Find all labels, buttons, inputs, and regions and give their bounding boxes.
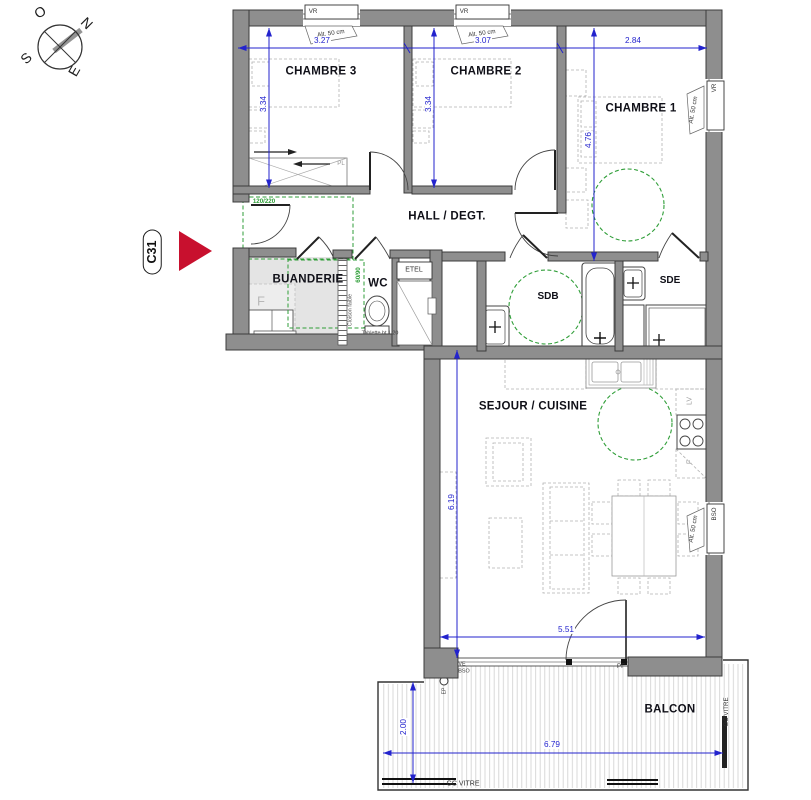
cloison-faible-label: Cloison faible xyxy=(348,294,353,326)
sde-door-leaf xyxy=(672,233,699,258)
toilet xyxy=(365,296,389,326)
room-label-chambre1: CHAMBRE 1 xyxy=(605,103,676,115)
window-label-vr-chambre3: VR xyxy=(309,9,318,15)
turning-circle-cuisine xyxy=(598,386,672,460)
wall-sejour-bottom-right xyxy=(628,657,722,676)
unit-label: C31 xyxy=(143,230,162,275)
window-label-vr-chambre1: VR xyxy=(712,84,718,93)
turning-circle-chambre1 xyxy=(592,169,664,241)
doors xyxy=(251,150,699,660)
floor-plan: O N E S C31 CHAMBRE 3 CHAMBRE 2 CHAMBRE … xyxy=(0,0,811,800)
bay-label-pf: PF xyxy=(617,664,625,670)
coffee-table xyxy=(489,518,522,568)
closet-pl xyxy=(249,149,347,191)
bay-label-ve: VE xyxy=(458,662,465,667)
closet-label-pl: PL xyxy=(337,161,345,167)
washer-label: F xyxy=(257,295,265,308)
tablette-label: Tablette ht 1.20 xyxy=(362,331,399,336)
entry-door-swing xyxy=(251,205,290,244)
wc-door-size-label: 60/90 xyxy=(356,267,362,282)
dim-label-chambre2-depth: 3.34 xyxy=(425,95,433,113)
dim-label-chambre3-depth: 3.34 xyxy=(260,95,268,113)
bay-label-bso: BSO xyxy=(458,669,469,674)
dim-label-sejour-depth: 6.19 xyxy=(448,493,456,511)
wall-hall-top-a xyxy=(233,186,370,194)
room-label-buanderie: BUANDERIE xyxy=(272,274,343,286)
room-label-sde: SDE xyxy=(660,276,681,286)
room-label-chambre2: CHAMBRE 2 xyxy=(450,66,521,78)
sdb-door-leaf xyxy=(523,235,547,258)
dim-label-chambre1-depth: 4.76 xyxy=(585,131,593,149)
wall-hall-bottom-a xyxy=(440,252,505,261)
wall-wc-top-a xyxy=(333,250,352,258)
room-label-balcon: BALCON xyxy=(645,704,696,716)
window-label-vr-chambre2: VR xyxy=(460,9,469,15)
sideboard xyxy=(440,472,456,578)
turning-circle-sdb xyxy=(509,270,583,344)
balcony xyxy=(378,660,748,790)
entry-door-size-label: 120/220 xyxy=(253,199,275,205)
dim-label-balcon-width: 6.79 xyxy=(543,741,561,749)
wc-door-leaf xyxy=(355,237,376,259)
dim-label-sejour-width: 5.51 xyxy=(557,626,575,634)
balcony-decking xyxy=(380,664,746,788)
sde-cabinet xyxy=(620,305,644,351)
drain-label-ep: EP xyxy=(443,688,448,695)
etel-label: ETEL xyxy=(405,267,423,274)
room-label-sejour: SEJOUR / CUISINE xyxy=(479,401,587,413)
wall-left-upper xyxy=(233,10,249,202)
oven-label: F xyxy=(687,460,694,464)
wall-sejour-top xyxy=(424,346,722,359)
wall-hall-bottom-b xyxy=(548,252,658,261)
wall-entry-buanderie xyxy=(249,248,296,257)
wall-sejour-bottom-left xyxy=(424,648,458,678)
dishwasher-label: LV xyxy=(687,397,694,405)
wall-sdb-left xyxy=(477,261,486,351)
wall-sejour-left xyxy=(424,334,440,662)
railing-label-bottom: GC VITRE xyxy=(446,781,479,788)
room-label-wc: WC xyxy=(368,278,388,290)
cloison-faible-partition xyxy=(338,259,347,345)
buanderie-door-leaf xyxy=(297,237,319,259)
compass-rose xyxy=(38,25,82,69)
dining-table xyxy=(612,496,676,576)
wall-ch3-ch2 xyxy=(404,26,412,193)
wall-hall-bottom-c xyxy=(700,252,708,261)
etel-closet xyxy=(397,262,436,345)
dim-label-chambre1-width: 2.84 xyxy=(624,37,642,45)
shower xyxy=(646,305,708,351)
dim-label-chambre2-width: 3.07 xyxy=(474,37,492,45)
room-label-chambre3: CHAMBRE 3 xyxy=(285,66,356,78)
wall-hall-top-b xyxy=(412,186,512,194)
railing-label-right: GC VITRE xyxy=(724,697,730,726)
room-label-hall: HALL / DEGT. xyxy=(408,211,486,223)
entrance-arrow-icon xyxy=(179,231,212,271)
room-label-sdb: SDB xyxy=(537,292,558,302)
wall-ch2-ch1 xyxy=(557,26,566,213)
kitchen-counter xyxy=(505,357,586,389)
laundry-counter xyxy=(249,310,293,334)
window-label-bso-sejour: BSO xyxy=(712,507,718,520)
wall-sdb-sde xyxy=(615,261,623,351)
dim-label-balcon-depth: 2.00 xyxy=(400,718,408,736)
